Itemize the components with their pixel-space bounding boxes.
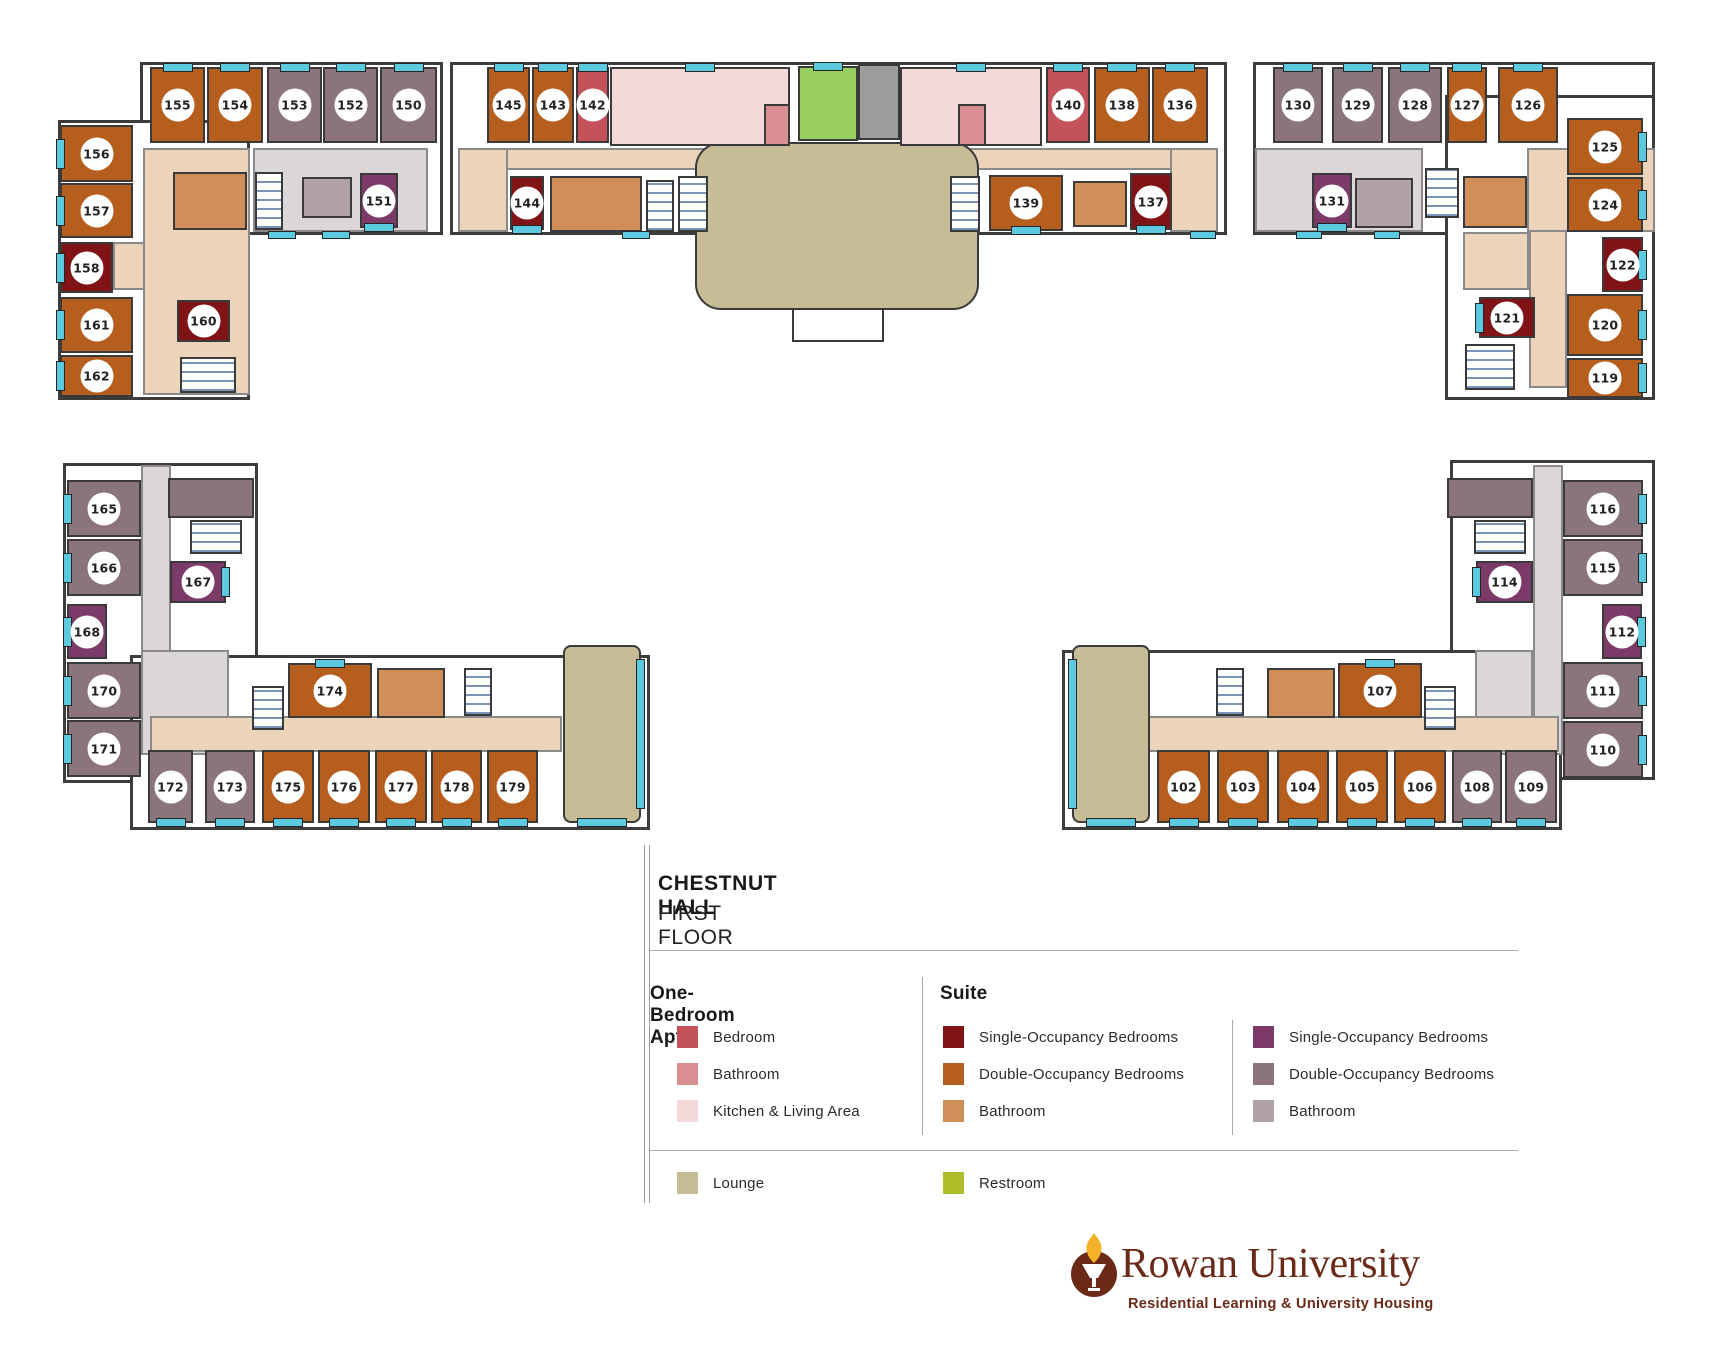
legend-label: Single-Occupancy Bedrooms: [1289, 1029, 1488, 1046]
legend-item: Restroom: [943, 1172, 1046, 1194]
room-number: 124: [1589, 188, 1622, 221]
room-170: 170: [67, 662, 141, 719]
room-number: 143: [537, 89, 570, 122]
room-number: 156: [80, 137, 113, 170]
room-112: 112: [1602, 604, 1642, 659]
suite-bathroom: [1355, 178, 1413, 228]
room-number: 155: [161, 89, 194, 122]
room-142: 142: [576, 67, 609, 143]
room-166: 166: [67, 539, 141, 596]
room-104: 104: [1277, 750, 1329, 823]
legend-swatch: [677, 1026, 698, 1048]
room-126: 126: [1498, 67, 1558, 143]
window: [322, 231, 350, 239]
corridor: [1533, 465, 1563, 755]
room-number: 150: [392, 89, 425, 122]
room-number: 128: [1399, 89, 1432, 122]
window: [63, 494, 72, 524]
room-number: 109: [1515, 770, 1548, 803]
room-number: 144: [511, 187, 544, 220]
window: [494, 63, 524, 72]
elevator: [858, 64, 900, 140]
room-174: 174: [288, 663, 372, 718]
room-number: 176: [328, 770, 361, 803]
window: [1288, 818, 1318, 827]
window: [1516, 818, 1546, 827]
double-occupancy-bedroom: [168, 478, 254, 518]
room-number: 111: [1587, 674, 1620, 707]
legend-label: Bathroom: [979, 1103, 1046, 1120]
room-number: 103: [1227, 770, 1260, 803]
room-number: 116: [1587, 492, 1620, 525]
room-number: 171: [88, 732, 121, 765]
window: [577, 818, 627, 827]
legend-swatch: [1253, 1100, 1274, 1122]
room-number: 105: [1346, 770, 1379, 803]
window: [280, 63, 310, 72]
legend-swatch: [1253, 1063, 1274, 1085]
room-number: 165: [88, 492, 121, 525]
room-105: 105: [1336, 750, 1388, 823]
window: [1343, 63, 1373, 72]
room-171: 171: [67, 720, 141, 777]
stairwell: [1424, 686, 1456, 730]
room-107: 107: [1338, 663, 1422, 718]
room-160: 160: [177, 300, 230, 342]
suite-bathroom: [173, 172, 247, 230]
room-number: 161: [80, 309, 113, 342]
suite-bathroom: [550, 176, 642, 232]
window: [220, 63, 250, 72]
room-number: 137: [1135, 185, 1168, 218]
room-number: 122: [1606, 248, 1639, 281]
window: [1011, 226, 1041, 235]
room-number: 145: [492, 89, 525, 122]
room-103: 103: [1217, 750, 1269, 823]
room-number: 115: [1587, 551, 1620, 584]
legend-item: Bathroom: [1253, 1100, 1356, 1122]
room-162: 162: [60, 355, 133, 397]
room-108: 108: [1452, 750, 1502, 823]
corridor: [1170, 148, 1218, 232]
room-number: 129: [1341, 89, 1374, 122]
corridor: [1147, 716, 1559, 752]
window: [1228, 818, 1258, 827]
corridor: [1463, 232, 1529, 290]
suite-bathroom: [1267, 668, 1335, 718]
room-150: 150: [380, 67, 437, 143]
room-140: 140: [1046, 67, 1090, 143]
legend-label: Bathroom: [713, 1066, 780, 1083]
floor-name: FIRST FLOOR: [658, 902, 733, 950]
window: [512, 225, 542, 234]
window: [1086, 818, 1136, 827]
window: [1107, 63, 1137, 72]
stairwell: [646, 180, 674, 232]
room-number: 157: [80, 194, 113, 227]
legend-swatch: [943, 1063, 964, 1085]
window: [56, 139, 65, 169]
room-number: 154: [219, 89, 252, 122]
double-occupancy-bedroom: [1447, 478, 1533, 518]
room-number: 153: [278, 89, 311, 122]
room-178: 178: [431, 750, 482, 823]
legend-column-divider: [1232, 1020, 1233, 1135]
window: [63, 734, 72, 764]
window: [386, 818, 416, 827]
room-number: 168: [71, 615, 104, 648]
stairwell: [678, 176, 708, 232]
window: [1638, 310, 1647, 340]
window: [56, 253, 65, 283]
window: [63, 676, 72, 706]
legend-swatch: [677, 1100, 698, 1122]
window: [1136, 225, 1166, 234]
legend-item: Single-Occupancy Bedrooms: [943, 1026, 1178, 1048]
corridor: [458, 148, 508, 232]
legend-item: Single-Occupancy Bedrooms: [1253, 1026, 1488, 1048]
room-156: 156: [60, 125, 133, 182]
suite-bathroom: [302, 177, 352, 218]
window: [1513, 63, 1543, 72]
window: [315, 659, 345, 668]
room-number: 119: [1589, 362, 1622, 395]
room-168: 168: [67, 604, 107, 659]
window: [1374, 231, 1400, 239]
corridor: [150, 716, 562, 752]
window: [1068, 659, 1077, 809]
legend-item: Double-Occupancy Bedrooms: [1253, 1063, 1494, 1085]
room-114: 114: [1476, 561, 1533, 603]
kitchen-living-area: [610, 67, 790, 146]
legend-item: Bathroom: [943, 1100, 1046, 1122]
room-139: 139: [989, 175, 1063, 231]
room-number: 166: [88, 551, 121, 584]
room-167: 167: [170, 561, 226, 603]
window: [1638, 494, 1647, 524]
room-number: 178: [440, 770, 473, 803]
window: [1169, 818, 1199, 827]
room-144: 144: [510, 176, 544, 230]
room-number: 175: [272, 770, 305, 803]
room-115: 115: [1563, 539, 1643, 596]
legend-swatch: [677, 1172, 698, 1194]
window: [1053, 63, 1083, 72]
legend-label: Double-Occupancy Bedrooms: [979, 1066, 1184, 1083]
room-number: 130: [1282, 89, 1315, 122]
torch-icon: [1066, 1231, 1122, 1299]
room-111: 111: [1563, 662, 1643, 719]
window: [578, 63, 608, 72]
room-number: 158: [70, 251, 103, 284]
logo-wordmark: Rowan University: [1121, 1240, 1420, 1288]
room-124: 124: [1567, 177, 1643, 232]
legend-label: Lounge: [713, 1175, 764, 1192]
room-154: 154: [207, 67, 263, 143]
window: [1190, 231, 1216, 239]
window: [1462, 818, 1492, 827]
apartment-bathroom: [958, 104, 986, 146]
room-number: 139: [1010, 187, 1043, 220]
window: [1638, 363, 1647, 393]
room-number: 151: [363, 184, 396, 217]
window: [1405, 818, 1435, 827]
window: [1638, 735, 1647, 765]
legend-item: Bedroom: [677, 1026, 775, 1048]
room-116: 116: [1563, 480, 1643, 537]
window: [56, 196, 65, 226]
window: [273, 818, 303, 827]
room-176: 176: [318, 750, 370, 823]
legend-item: Double-Occupancy Bedrooms: [943, 1063, 1184, 1085]
legend-column-divider: [922, 977, 923, 1135]
window: [336, 63, 366, 72]
window: [364, 223, 394, 232]
legend-label: Restroom: [979, 1175, 1046, 1192]
window: [813, 62, 843, 71]
entrance-portico: [792, 308, 884, 342]
restroom-area: [798, 66, 858, 141]
room-157: 157: [60, 183, 133, 238]
room-number: 138: [1106, 89, 1139, 122]
lounge-area: [695, 142, 979, 310]
room-127: 127: [1447, 67, 1487, 143]
window: [1365, 659, 1395, 668]
window: [1472, 567, 1481, 597]
room-number: 136: [1164, 89, 1197, 122]
window: [215, 818, 245, 827]
room-number: 170: [88, 674, 121, 707]
window: [685, 63, 715, 72]
room-121: 121: [1479, 297, 1535, 338]
room-number: 126: [1512, 89, 1545, 122]
window: [156, 818, 186, 827]
room-number: 125: [1589, 130, 1622, 163]
room-158: 158: [60, 242, 113, 293]
legend-heading-suite: Suite: [940, 983, 987, 1005]
room-175: 175: [262, 750, 314, 823]
lounge-area: [1072, 645, 1150, 823]
room-number: 104: [1287, 770, 1320, 803]
stairwell: [950, 176, 980, 232]
floor-plan-page: 1551541531521501561571581611621601511451…: [0, 0, 1709, 1352]
stairwell: [1465, 344, 1515, 390]
room-110: 110: [1563, 721, 1643, 778]
room-number: 179: [496, 770, 529, 803]
legend-label: Double-Occupancy Bedrooms: [1289, 1066, 1494, 1083]
legend-swatch: [1253, 1026, 1274, 1048]
window: [1317, 223, 1347, 232]
window: [956, 63, 986, 72]
legend-item: Bathroom: [677, 1063, 780, 1085]
room-129: 129: [1332, 67, 1383, 143]
room-165: 165: [67, 480, 141, 537]
room-number: 162: [80, 360, 113, 393]
window: [163, 63, 193, 72]
stairwell: [255, 172, 283, 230]
room-number: 140: [1052, 89, 1085, 122]
corridor: [113, 242, 145, 290]
legend-rule: [650, 1150, 1518, 1151]
legend-swatch: [943, 1100, 964, 1122]
legend-label: Bedroom: [713, 1029, 775, 1046]
room-number: 152: [334, 89, 367, 122]
room-161: 161: [60, 297, 133, 353]
suite-bathroom: [1463, 176, 1527, 228]
window: [1638, 132, 1647, 162]
room-128: 128: [1388, 67, 1442, 143]
room-number: 121: [1491, 301, 1524, 334]
legend-item: Kitchen & Living Area: [677, 1100, 860, 1122]
stairwell: [252, 686, 284, 730]
room-number: 108: [1461, 770, 1494, 803]
room-122: 122: [1602, 237, 1643, 292]
room-number: 120: [1589, 309, 1622, 342]
window: [622, 231, 650, 239]
legend-swatch: [943, 1026, 964, 1048]
suite-bathroom: [377, 668, 445, 718]
room-number: 172: [154, 770, 187, 803]
stairwell: [1474, 520, 1526, 554]
window: [1475, 303, 1484, 333]
window: [498, 818, 528, 827]
legend-swatch: [677, 1063, 698, 1085]
room-106: 106: [1394, 750, 1446, 823]
logo-tagline: Residential Learning & University Housin…: [1128, 1296, 1434, 1312]
window: [56, 361, 65, 391]
window: [1638, 250, 1647, 280]
room-number: 114: [1488, 566, 1521, 599]
room-145: 145: [487, 67, 530, 143]
window: [1283, 63, 1313, 72]
room-179: 179: [487, 750, 538, 823]
window: [1400, 63, 1430, 72]
room-number: 131: [1316, 184, 1349, 217]
suite-bathroom: [1073, 181, 1127, 227]
room-152: 152: [323, 67, 378, 143]
window: [1638, 676, 1647, 706]
room-109: 109: [1505, 750, 1557, 823]
room-number: 167: [182, 566, 215, 599]
window: [1347, 818, 1377, 827]
room-number: 102: [1167, 770, 1200, 803]
window: [329, 818, 359, 827]
room-number: 160: [187, 305, 220, 338]
room-143: 143: [532, 67, 574, 143]
window: [1165, 63, 1195, 72]
window: [63, 553, 72, 583]
window: [1638, 190, 1647, 220]
legend-item: Lounge: [677, 1172, 764, 1194]
legend-label: Single-Occupancy Bedrooms: [979, 1029, 1178, 1046]
apartment-bathroom: [764, 104, 790, 146]
legend-rule: [650, 950, 1518, 951]
room-177: 177: [375, 750, 427, 823]
window: [394, 63, 424, 72]
room-number: 110: [1587, 733, 1620, 766]
room-125: 125: [1567, 118, 1643, 175]
room-173: 173: [205, 750, 255, 823]
window: [221, 567, 230, 597]
room-number: 174: [314, 674, 347, 707]
room-130: 130: [1273, 67, 1323, 143]
room-number: 173: [214, 770, 247, 803]
legend-swatch: [943, 1172, 964, 1194]
legend-label: Kitchen & Living Area: [713, 1103, 860, 1120]
room-172: 172: [148, 750, 193, 823]
room-119: 119: [1567, 358, 1643, 398]
window: [538, 63, 568, 72]
room-137: 137: [1130, 173, 1172, 230]
stairwell: [180, 357, 236, 393]
lounge-area: [563, 645, 641, 823]
room-153: 153: [267, 67, 322, 143]
window: [268, 231, 296, 239]
room-number: 107: [1364, 674, 1397, 707]
room-120: 120: [1567, 294, 1643, 356]
window: [636, 659, 645, 809]
room-number: 112: [1606, 615, 1639, 648]
room-number: 177: [385, 770, 418, 803]
room-131: 131: [1312, 173, 1352, 228]
window: [1452, 63, 1482, 72]
window: [56, 310, 65, 340]
room-151: 151: [360, 173, 398, 228]
room-136: 136: [1152, 67, 1208, 143]
room-number: 142: [576, 89, 609, 122]
stairwell: [190, 520, 242, 554]
window: [442, 818, 472, 827]
room-number: 106: [1404, 770, 1437, 803]
room-102: 102: [1157, 750, 1210, 823]
window: [1638, 553, 1647, 583]
room-155: 155: [150, 67, 205, 143]
stairwell: [1425, 168, 1459, 218]
stairwell: [1216, 668, 1244, 716]
stairwell: [464, 668, 492, 716]
room-number: 127: [1451, 89, 1484, 122]
legend-label: Bathroom: [1289, 1103, 1356, 1120]
window: [1296, 231, 1322, 239]
room-138: 138: [1094, 67, 1150, 143]
